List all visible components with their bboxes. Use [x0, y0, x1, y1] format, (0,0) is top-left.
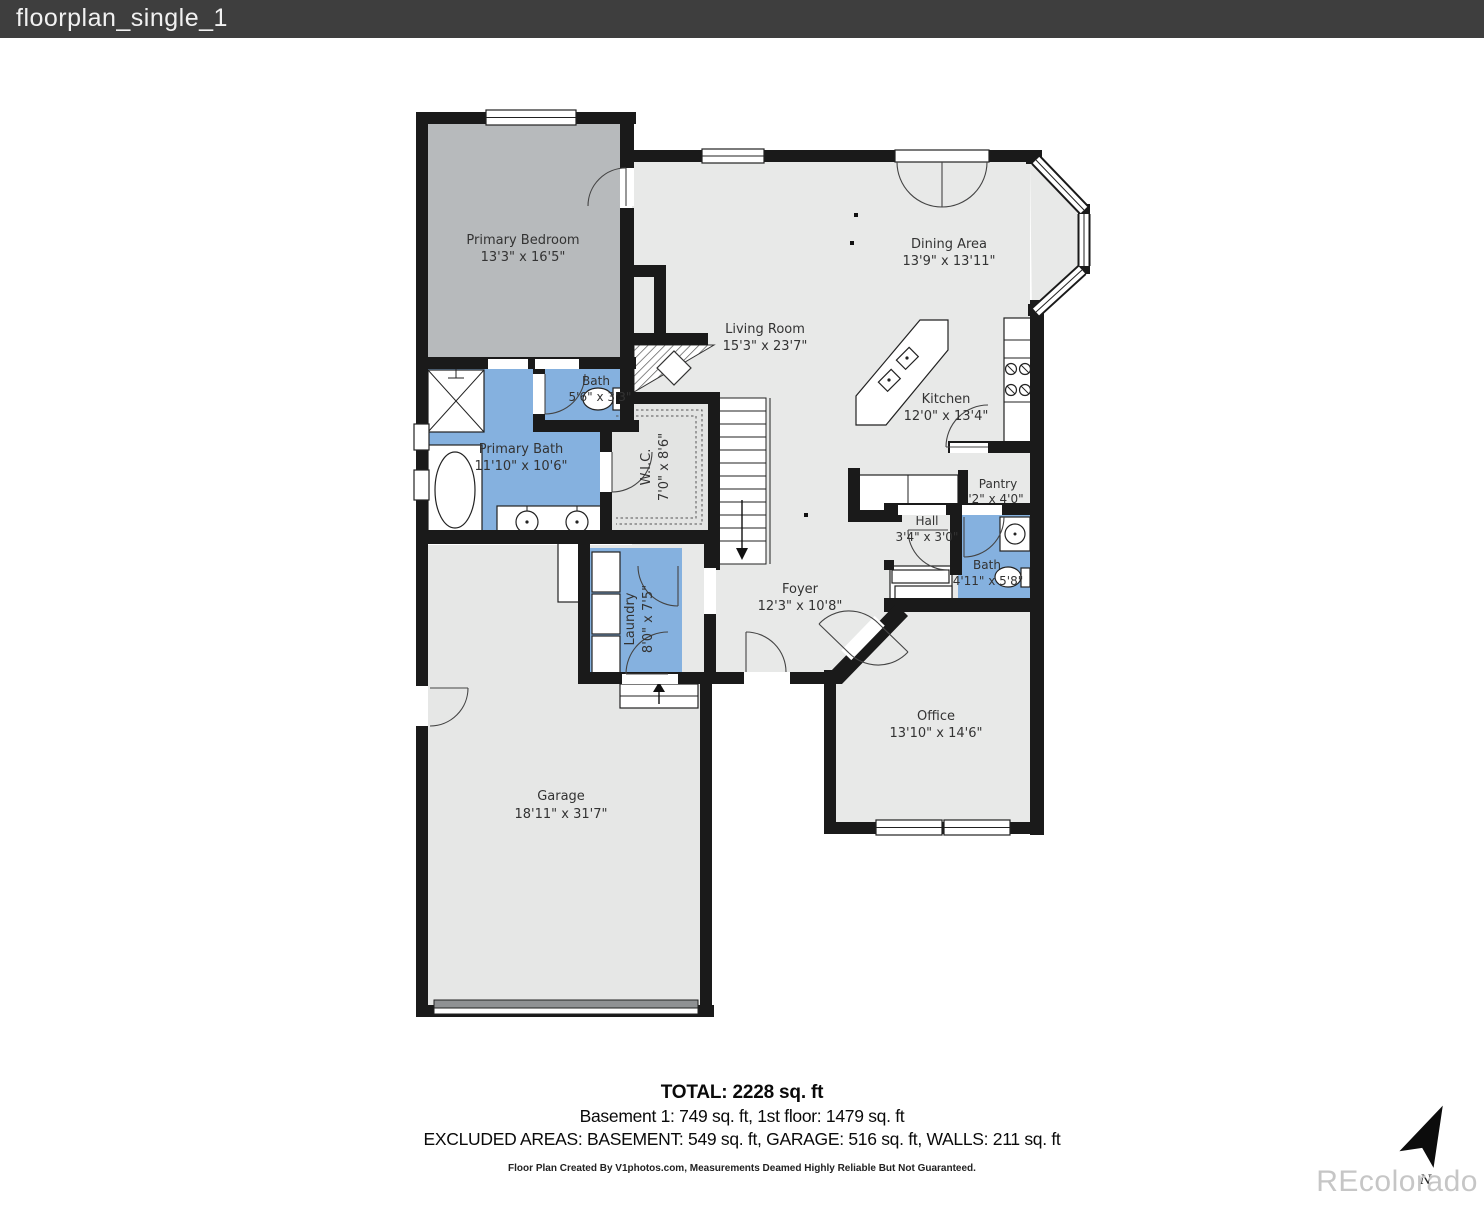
svg-text:3'4" x 3'0": 3'4" x 3'0": [896, 530, 959, 544]
svg-text:13'3" x 16'5": 13'3" x 16'5": [481, 250, 566, 265]
svg-text:11'10" x 10'6": 11'10" x 10'6": [475, 459, 568, 474]
floor-plan: Primary Bedroom 13'3" x 16'5" Dining Are…: [0, 0, 1484, 1200]
svg-text:7'0" x 8'6": 7'0" x 8'6": [657, 433, 672, 501]
excluded-areas-text: EXCLUDED AREAS: BASEMENT: 549 sq. ft, GA…: [0, 1129, 1484, 1150]
svg-text:12'3" x 10'8": 12'3" x 10'8": [758, 599, 843, 614]
svg-text:Garage: Garage: [537, 789, 585, 804]
svg-text:18'11" x 31'7": 18'11" x 31'7": [515, 807, 608, 822]
svg-text:Primary Bath: Primary Bath: [479, 442, 564, 457]
svg-text:'2" x 4'0": '2" x 4'0": [968, 492, 1023, 506]
svg-text:Kitchen: Kitchen: [922, 392, 971, 407]
svg-text:Bath: Bath: [582, 374, 610, 388]
svg-text:Bath: Bath: [973, 558, 1001, 572]
svg-text:4'11" x 5'8": 4'11" x 5'8": [953, 574, 1024, 588]
svg-text:Primary Bedroom: Primary Bedroom: [466, 233, 579, 248]
svg-text:13'10" x 14'6": 13'10" x 14'6": [890, 726, 983, 741]
svg-text:13'9" x 13'11": 13'9" x 13'11": [903, 254, 996, 269]
page-title: floorplan_single_1: [16, 4, 228, 32]
svg-text:Pantry: Pantry: [979, 477, 1017, 491]
window-bedroom-top: [486, 110, 576, 125]
svg-text:15'3" x 23'7": 15'3" x 23'7": [723, 339, 808, 354]
garage-stoop: [620, 682, 698, 708]
floor-plan-image: Primary Bedroom 13'3" x 16'5" Dining Are…: [0, 0, 1484, 1200]
svg-text:W.I.C.: W.I.C.: [639, 449, 654, 486]
total-area-text: TOTAL: 2228 sq. ft: [0, 1082, 1484, 1104]
svg-text:Dining Area: Dining Area: [911, 237, 987, 252]
window-living-top: [702, 149, 764, 163]
recolorado-watermark: REcolorado: [1316, 1165, 1478, 1199]
area-summary: TOTAL: 2228 sq. ft Basement 1: 749 sq. f…: [0, 1082, 1484, 1174]
kitchen-counter: [1004, 318, 1032, 450]
garage-door: [434, 1000, 698, 1014]
svg-text:Foyer: Foyer: [782, 582, 819, 597]
svg-text:Laundry: Laundry: [623, 592, 638, 645]
shower-fixture: [428, 366, 484, 432]
disclaimer-text: Floor Plan Created By V1photos.com, Meas…: [0, 1163, 1484, 1174]
floor-areas-text: Basement 1: 749 sq. ft, 1st floor: 1479 …: [0, 1106, 1484, 1127]
svg-text:Living Room: Living Room: [725, 322, 805, 337]
svg-text:8'0" x 7'5": 8'0" x 7'5": [641, 585, 656, 653]
svg-text:Office: Office: [917, 709, 955, 724]
svg-text:5'6" x 3'3": 5'6" x 3'3": [569, 390, 632, 404]
laundry-cabinets: [592, 552, 620, 674]
window-title-bar: floorplan_single_1: [0, 0, 1484, 38]
svg-text:12'0" x 13'4": 12'0" x 13'4": [904, 409, 989, 424]
svg-text:Hall: Hall: [915, 514, 938, 528]
sink-fixture: [1000, 517, 1030, 551]
stairs: [718, 398, 770, 564]
